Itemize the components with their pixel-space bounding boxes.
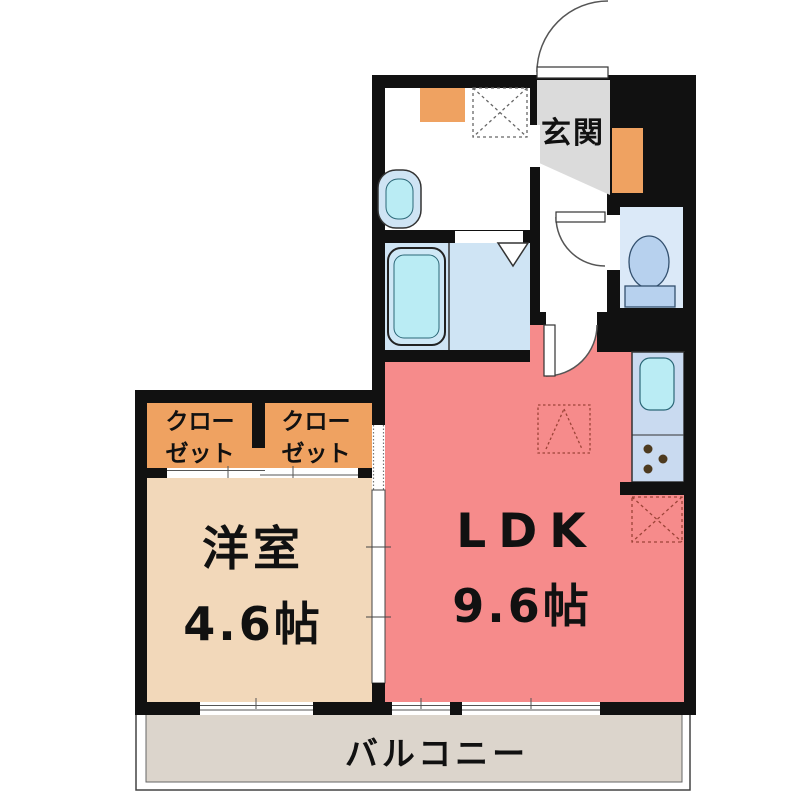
bedroom-floor bbox=[147, 478, 373, 702]
balcony-label: バルコニー bbox=[345, 734, 529, 773]
bath-doorway bbox=[455, 231, 523, 243]
toilet-door-leaf bbox=[556, 212, 605, 222]
wall-segment bbox=[597, 312, 620, 352]
bedroom-label: 洋室 bbox=[202, 522, 304, 577]
washroom-cabinet bbox=[420, 88, 465, 122]
toilet-doorway bbox=[605, 215, 620, 270]
bathtub-icon bbox=[388, 248, 445, 345]
wall-segment bbox=[372, 683, 385, 715]
ldk-doorway bbox=[546, 312, 597, 325]
ldk-size-label: 9.6帖 bbox=[452, 579, 592, 633]
kitchen-unit bbox=[632, 352, 684, 482]
ldk-door-leaf bbox=[544, 325, 555, 376]
entrance-label: 玄関 bbox=[541, 116, 605, 151]
wall-segment bbox=[372, 355, 385, 425]
kitchen-sink-icon bbox=[640, 358, 674, 410]
closet-divider-wall bbox=[252, 403, 265, 448]
closet-left-label-2: ゼット bbox=[166, 441, 235, 467]
right-wall bbox=[684, 352, 696, 715]
shoe-cabinet bbox=[612, 128, 643, 193]
bedroom-size-label: 4.6帖 bbox=[183, 597, 323, 651]
sliding-door bbox=[372, 490, 385, 683]
floor-plan: 玄関 LDK 9.6帖 クロー ゼット ク bbox=[0, 0, 800, 800]
floor-plan-canvas: 玄関 LDK 9.6帖 クロー ゼット ク bbox=[0, 0, 800, 800]
kitchen-wall-stub bbox=[620, 482, 685, 495]
closet-sliding-door bbox=[167, 466, 358, 480]
entrance-door-leaf bbox=[537, 67, 608, 78]
closet-right-label-2: ゼット bbox=[282, 441, 351, 467]
washroom-doorway bbox=[528, 125, 540, 167]
closet-left-label-1: クロー bbox=[166, 409, 235, 435]
ldk-label: LDK bbox=[456, 504, 597, 559]
washbasin-icon bbox=[378, 170, 421, 228]
closet-right-label-1: クロー bbox=[282, 409, 351, 435]
